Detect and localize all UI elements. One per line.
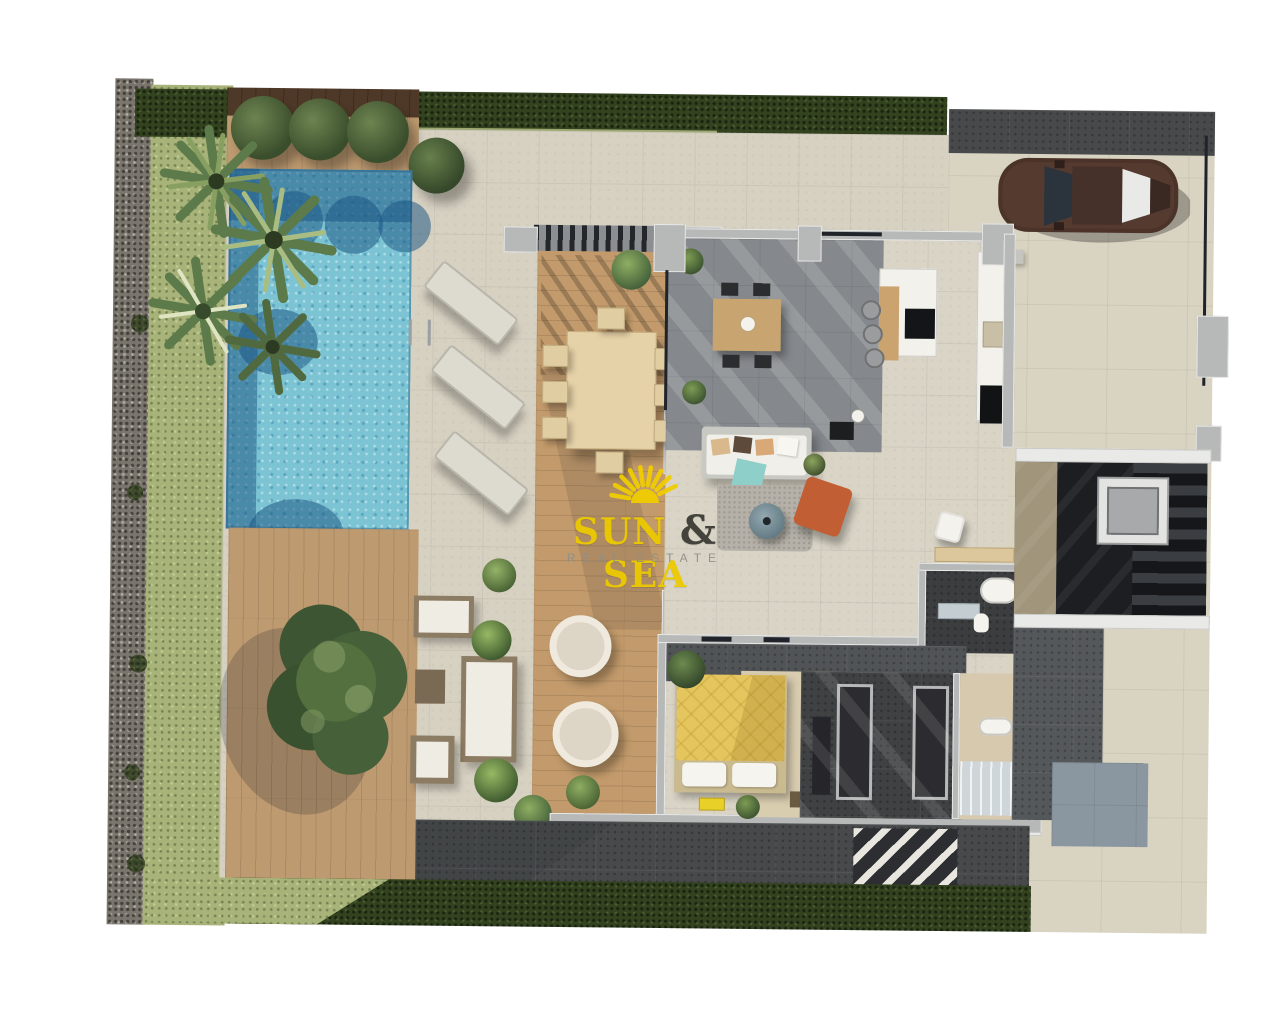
toilet bbox=[974, 613, 989, 632]
gate-post bbox=[1196, 316, 1229, 378]
table-centerpiece bbox=[741, 317, 755, 331]
car bbox=[994, 150, 1191, 246]
potted-plant bbox=[682, 380, 706, 404]
floor-plan-page: { "watermark": { "word1": "SUN", "ampers… bbox=[0, 0, 1280, 1024]
bathtub bbox=[980, 577, 1018, 603]
shower-glass bbox=[960, 761, 1013, 816]
hanging-chair bbox=[549, 615, 612, 678]
hanging-chair bbox=[552, 701, 619, 768]
bedroom-door bbox=[702, 636, 732, 641]
watermark-logo: SUN & SEA REAL ESTATE bbox=[540, 455, 750, 580]
dining-chair bbox=[542, 417, 568, 439]
light-streak bbox=[800, 672, 964, 820]
lounge-armchair-cushion bbox=[416, 741, 448, 777]
tagline-text: REAL ESTATE bbox=[540, 551, 750, 565]
grass-tuft bbox=[124, 764, 140, 780]
wall-east-upper bbox=[1002, 234, 1016, 448]
wall-pier bbox=[653, 224, 686, 272]
bathroom-sink bbox=[979, 717, 1013, 735]
interior-dining-chair bbox=[721, 283, 738, 296]
palm-trees bbox=[122, 110, 375, 413]
potted-plant bbox=[471, 620, 511, 660]
garden-tree bbox=[240, 586, 422, 788]
exterior-staircase bbox=[853, 828, 958, 887]
lounge-set bbox=[408, 595, 520, 792]
console-table bbox=[934, 547, 1014, 563]
potted-plant bbox=[611, 250, 651, 290]
interior-dining-chair bbox=[753, 283, 770, 296]
grass-tuft bbox=[129, 654, 147, 672]
bedroom-rug-yellow bbox=[700, 798, 724, 809]
decor-vase bbox=[852, 410, 864, 422]
grass-tuft bbox=[127, 854, 145, 872]
street-strip bbox=[949, 109, 1215, 156]
bed-pillow bbox=[732, 763, 776, 787]
potted-plant bbox=[474, 758, 518, 802]
round-bush bbox=[408, 137, 465, 194]
lounge-bench-cushion bbox=[419, 601, 469, 634]
coffee-table-decor bbox=[763, 517, 771, 525]
sun-icon bbox=[595, 455, 695, 515]
elevator-car bbox=[1107, 487, 1159, 536]
side-plant-table bbox=[803, 454, 825, 476]
elevator bbox=[1099, 479, 1168, 544]
dining-chair bbox=[542, 381, 568, 403]
wall-pier bbox=[798, 225, 822, 261]
lounge-side-table bbox=[415, 669, 445, 703]
sliding-glass-door bbox=[822, 232, 882, 237]
outdoor-dining-table bbox=[566, 331, 657, 450]
cooktop bbox=[905, 309, 935, 339]
wall-bath1-west bbox=[917, 563, 926, 655]
bar-stool bbox=[864, 348, 884, 368]
bar-stool bbox=[861, 300, 881, 320]
potted-plant bbox=[566, 775, 600, 809]
potted-plant bbox=[482, 558, 516, 592]
pool-ladder-icon bbox=[409, 319, 431, 345]
bed-pillow bbox=[682, 762, 726, 786]
brand-word-sun: SUN bbox=[573, 511, 666, 553]
dining-chair bbox=[542, 345, 568, 367]
wall-bath1-north bbox=[918, 563, 1024, 572]
brand-ampersand: & bbox=[680, 507, 717, 554]
sofa-pillow bbox=[755, 438, 774, 455]
interior-dining-chair bbox=[754, 355, 771, 368]
breakfast-bar bbox=[879, 286, 900, 360]
lounge-sofa-cushion bbox=[465, 662, 512, 756]
kitchen-counter-door bbox=[983, 321, 1005, 347]
wall-west-lower bbox=[656, 642, 667, 818]
sofa-pillow bbox=[733, 436, 753, 454]
bar-stool bbox=[863, 324, 883, 344]
sofa-pillow bbox=[711, 438, 731, 456]
pergola-beam-west bbox=[504, 226, 538, 252]
dining-chair bbox=[597, 307, 625, 329]
media-side-table bbox=[830, 422, 854, 440]
bush-shadow-on-water bbox=[379, 200, 432, 253]
bedroom-plant bbox=[736, 795, 760, 819]
grass-tuft bbox=[127, 484, 143, 500]
sofa-pillow bbox=[776, 436, 798, 457]
master-bed bbox=[674, 674, 787, 793]
blue-gray-paving bbox=[1051, 762, 1148, 847]
bedroom-door bbox=[764, 637, 790, 642]
interior-dining-chair bbox=[722, 355, 739, 368]
bedroom-plant bbox=[667, 650, 705, 688]
